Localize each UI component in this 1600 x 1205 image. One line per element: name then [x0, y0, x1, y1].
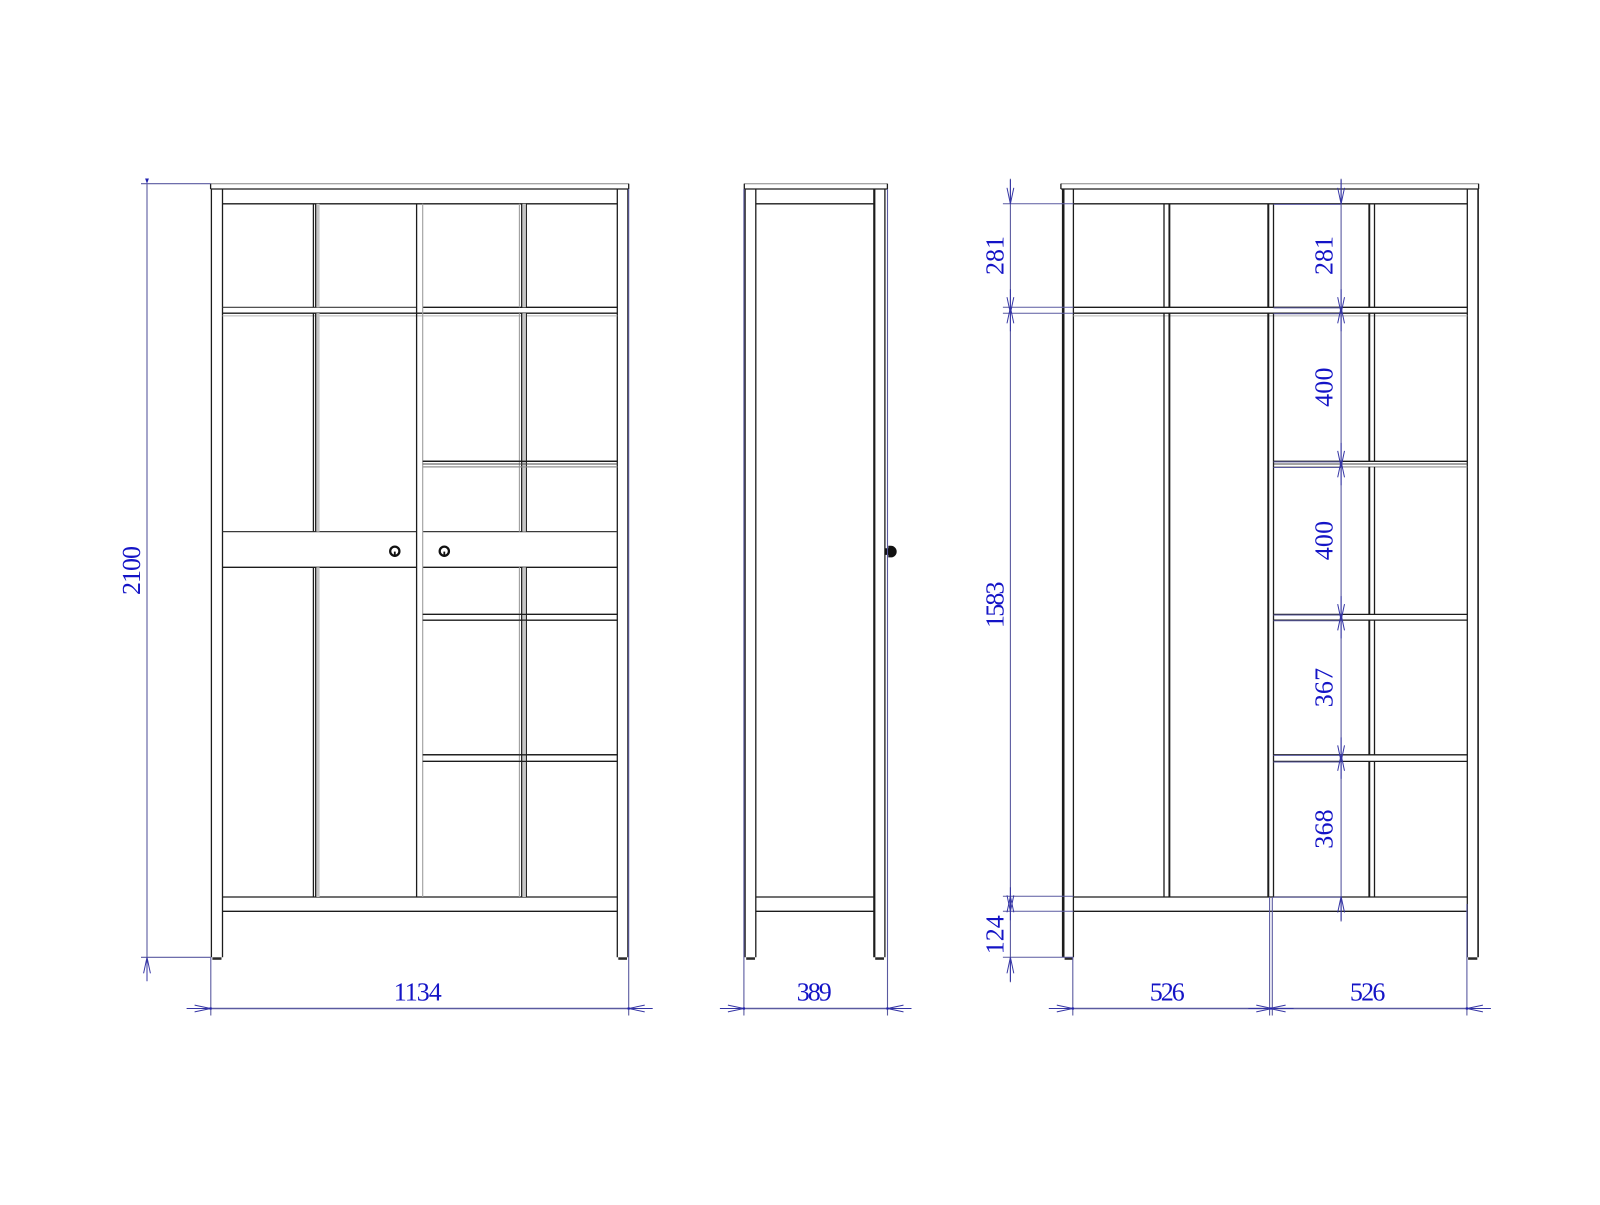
svg-text:1583: 1583	[980, 581, 1009, 628]
svg-text:400: 400	[1310, 368, 1339, 407]
svg-text:389: 389	[797, 977, 832, 1006]
svg-text:367: 367	[1310, 668, 1339, 707]
svg-text:1134: 1134	[394, 977, 442, 1006]
svg-text:368: 368	[1310, 809, 1339, 848]
svg-text:400: 400	[1310, 521, 1339, 560]
svg-text:281: 281	[1310, 236, 1339, 275]
svg-text:526: 526	[1150, 977, 1185, 1006]
svg-text:526: 526	[1350, 977, 1386, 1006]
svg-text:281: 281	[980, 236, 1009, 275]
svg-text:124: 124	[980, 915, 1009, 954]
svg-text:2100: 2100	[117, 546, 146, 595]
